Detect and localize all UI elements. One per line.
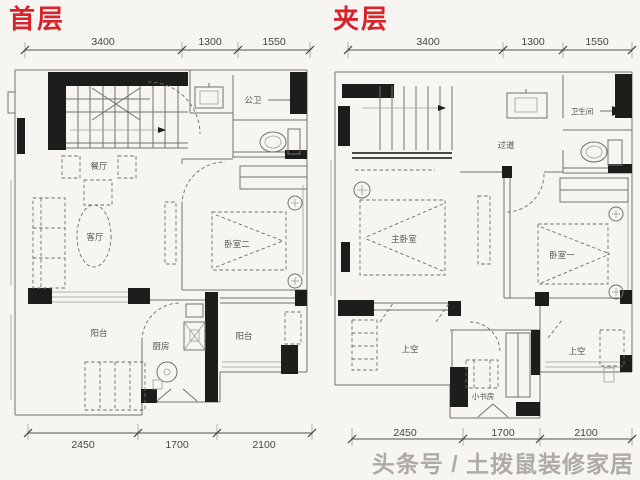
dim-top-2: 1300 [521,36,545,48]
ac-unit [285,312,301,344]
label-dining: 餐厅 [90,161,108,171]
first-floor-plan: 3400 1300 1550 2450 1700 2100 [0,0,320,480]
wardrobe [560,178,628,202]
label-living: 客厅 [86,232,104,242]
label-kitchen: 厨房 [152,341,169,351]
dim-top-3: 1550 [262,36,286,48]
void-furniture [352,320,377,370]
label-void-right: 上空 [568,346,585,356]
dim-bottom-2: 1700 [491,427,515,439]
dim-top-3: 1550 [585,36,609,48]
washing-machine [153,362,177,389]
label-balcony-right: 阳台 [235,331,252,341]
toilet [581,140,622,165]
sofa [33,198,65,288]
label-master: 主卧室 [391,234,417,244]
balcony-storage [85,362,145,410]
dim-bottom-1: 2450 [71,439,95,451]
dim-bottom-3: 2100 [252,439,276,451]
wardrobe [240,166,307,189]
stove [184,304,205,350]
label-bedroom2: 卧室二 [224,239,250,249]
mezzanine-plan: 3400 1300 1550 2450 1700 2100 [320,0,640,480]
door-arcs [380,174,562,352]
tv-cabinet [165,202,176,264]
label-corridor: 过道 [497,140,515,150]
label-public-bath: 公卫 [244,95,262,105]
tv-cabinet [478,196,490,264]
staircase [352,86,452,170]
label-bathroom: 卫生间 [571,106,594,116]
dim-bottom-3: 2100 [574,427,598,439]
label-study: 小书房 [472,391,495,401]
walls-black [17,72,307,403]
watermark: 头条号 / 土拨鼠装修家居 [372,445,634,479]
entry-door [478,404,508,417]
dimension-top: 3400 1300 1550 [344,36,636,58]
label-void-left: 上空 [401,344,418,354]
label-bedroom1: 卧室一 [549,250,575,260]
desk [466,360,498,388]
dimension-top: 3400 1300 1550 [21,36,314,58]
dim-top-2: 1300 [198,36,222,48]
dim-bottom-1: 2450 [393,427,417,439]
dim-bottom-2: 1700 [165,439,189,451]
floorplan-image: 首层 夹层 3400 1300 1550 2450 1700 [0,0,640,480]
dim-top-1: 3400 [416,36,440,48]
sink [507,89,547,118]
entry-door [157,389,197,401]
staircase [66,86,188,148]
master-bed [354,182,445,275]
sink [195,83,223,108]
dim-top-1: 3400 [91,36,115,48]
dimension-bottom: 2450 1700 2100 [348,427,636,446]
label-balcony-left: 阳台 [90,328,107,338]
ladder [506,333,530,397]
dimension-bottom: 2450 1700 2100 [24,424,316,451]
